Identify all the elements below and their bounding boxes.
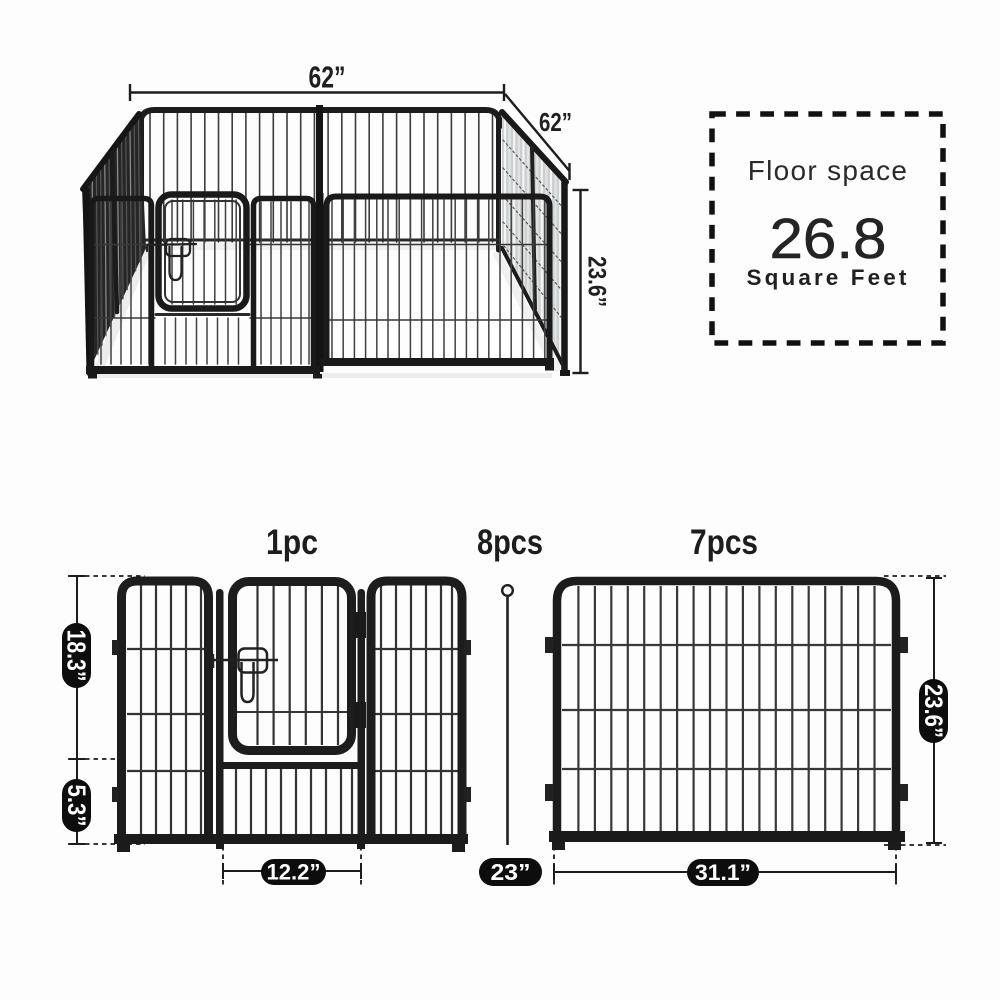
- svg-text:5.3”: 5.3”: [62, 785, 90, 827]
- svg-text:18.3”: 18.3”: [61, 630, 91, 682]
- svg-text:Square Feet: Square Feet: [747, 265, 910, 290]
- svg-text:Floor space: Floor space: [748, 155, 909, 186]
- svg-text:7pcs: 7pcs: [690, 523, 758, 562]
- svg-text:23”: 23”: [491, 859, 531, 885]
- svg-text:62”: 62”: [309, 60, 346, 95]
- svg-text:1pc: 1pc: [266, 523, 318, 562]
- svg-text:23.6”: 23.6”: [582, 256, 610, 307]
- svg-text:23.6”: 23.6”: [919, 684, 947, 738]
- svg-text:26.8: 26.8: [770, 207, 887, 271]
- svg-text:62”: 62”: [539, 109, 572, 137]
- svg-text:12.2”: 12.2”: [267, 860, 321, 885]
- svg-text:31.1”: 31.1”: [695, 860, 751, 885]
- svg-text:8pcs: 8pcs: [477, 523, 543, 562]
